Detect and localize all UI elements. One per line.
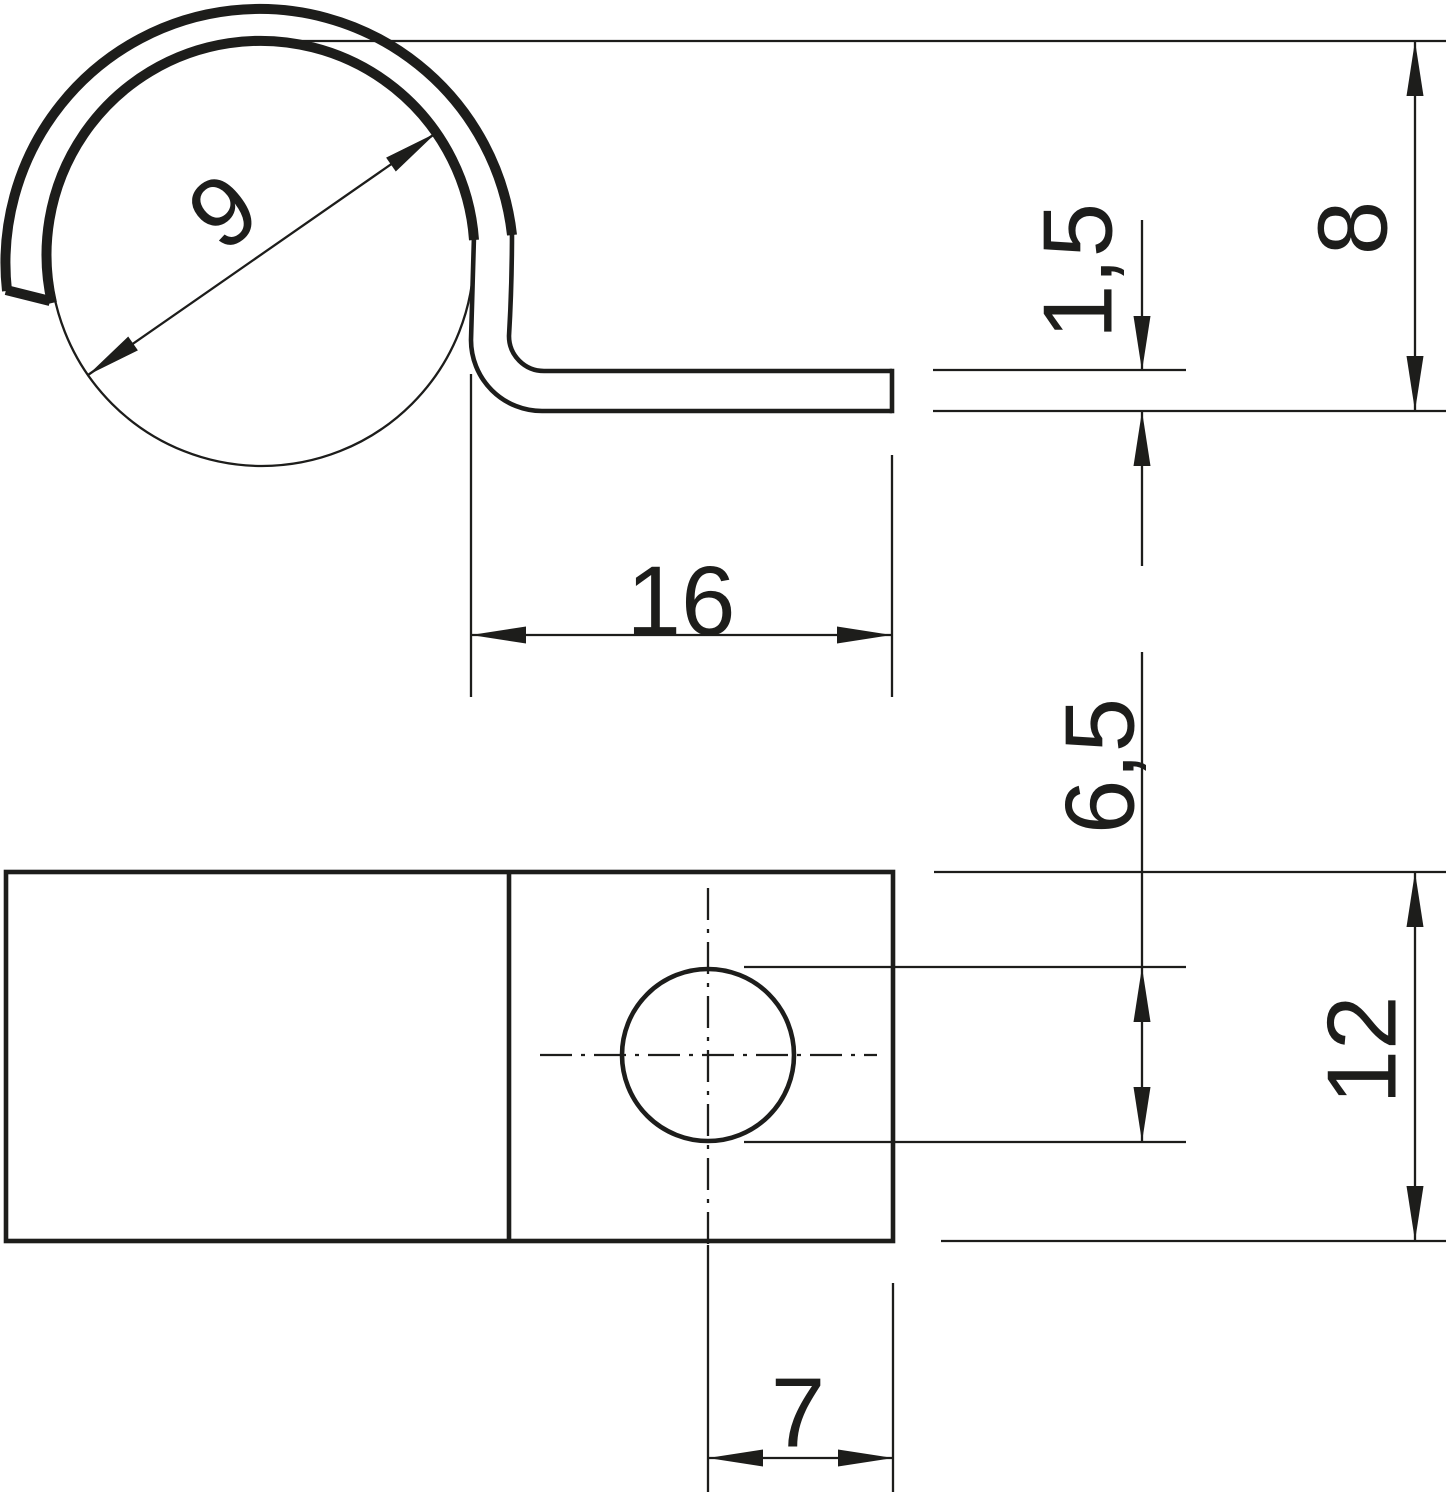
plan-view <box>6 872 893 1492</box>
dim-hole-offset: 7 <box>708 1283 893 1492</box>
arrowhead-1-5-bottom <box>1134 411 1151 466</box>
side-view <box>5 9 892 466</box>
dim-total-height: 8 <box>1297 41 1423 411</box>
dim-label-1-5: 1,5 <box>1022 203 1132 339</box>
arrowhead-16-left <box>471 627 526 644</box>
dim-clamping-diameter: 9 <box>88 133 436 375</box>
arrowhead-8-bottom <box>1407 356 1424 411</box>
dim-label-6-5: 6,5 <box>1044 698 1154 834</box>
clamp-technical-drawing: 9 8 1,5 16 <box>0 0 1454 1500</box>
dim-material-thickness: 1,5 <box>1022 203 1150 566</box>
arrowhead-8-top <box>1407 41 1424 96</box>
arrowhead-7-right <box>838 1450 893 1467</box>
arrowhead-6-5-bottom <box>1134 1087 1151 1142</box>
dim-label-8: 8 <box>1297 201 1407 256</box>
band-end-face <box>6 290 50 301</box>
arrowhead-12-bottom <box>1407 1186 1424 1241</box>
arrowhead-9-upper <box>386 133 436 172</box>
drawing-sheet: 9 8 1,5 16 <box>0 0 1454 1500</box>
arrowhead-16-right <box>837 627 892 644</box>
dim-line-9 <box>88 133 436 375</box>
arrowhead-9-lower <box>88 337 138 376</box>
arrowhead-1-5-top <box>1134 316 1151 371</box>
dim-label-16: 16 <box>626 545 735 655</box>
arrowhead-6-5-top <box>1134 967 1151 1022</box>
dim-hole-diameter: 6,5 <box>1044 652 1154 1142</box>
dim-label-12: 12 <box>1306 995 1416 1104</box>
dim-leg-length: 16 <box>471 374 892 697</box>
plan-view-dimensions: 6,5 12 7 <box>708 652 1446 1492</box>
dim-plate-width: 12 <box>1306 872 1423 1241</box>
arrowhead-12-top <box>1407 872 1424 927</box>
dim-label-7: 7 <box>771 1357 826 1467</box>
band-inner-edge <box>47 41 474 303</box>
arrowhead-7-left <box>708 1450 763 1467</box>
plate-outline <box>6 872 893 1241</box>
band-bend-to-leg-bottom <box>471 236 892 411</box>
band-bend-to-leg-top <box>509 231 892 371</box>
